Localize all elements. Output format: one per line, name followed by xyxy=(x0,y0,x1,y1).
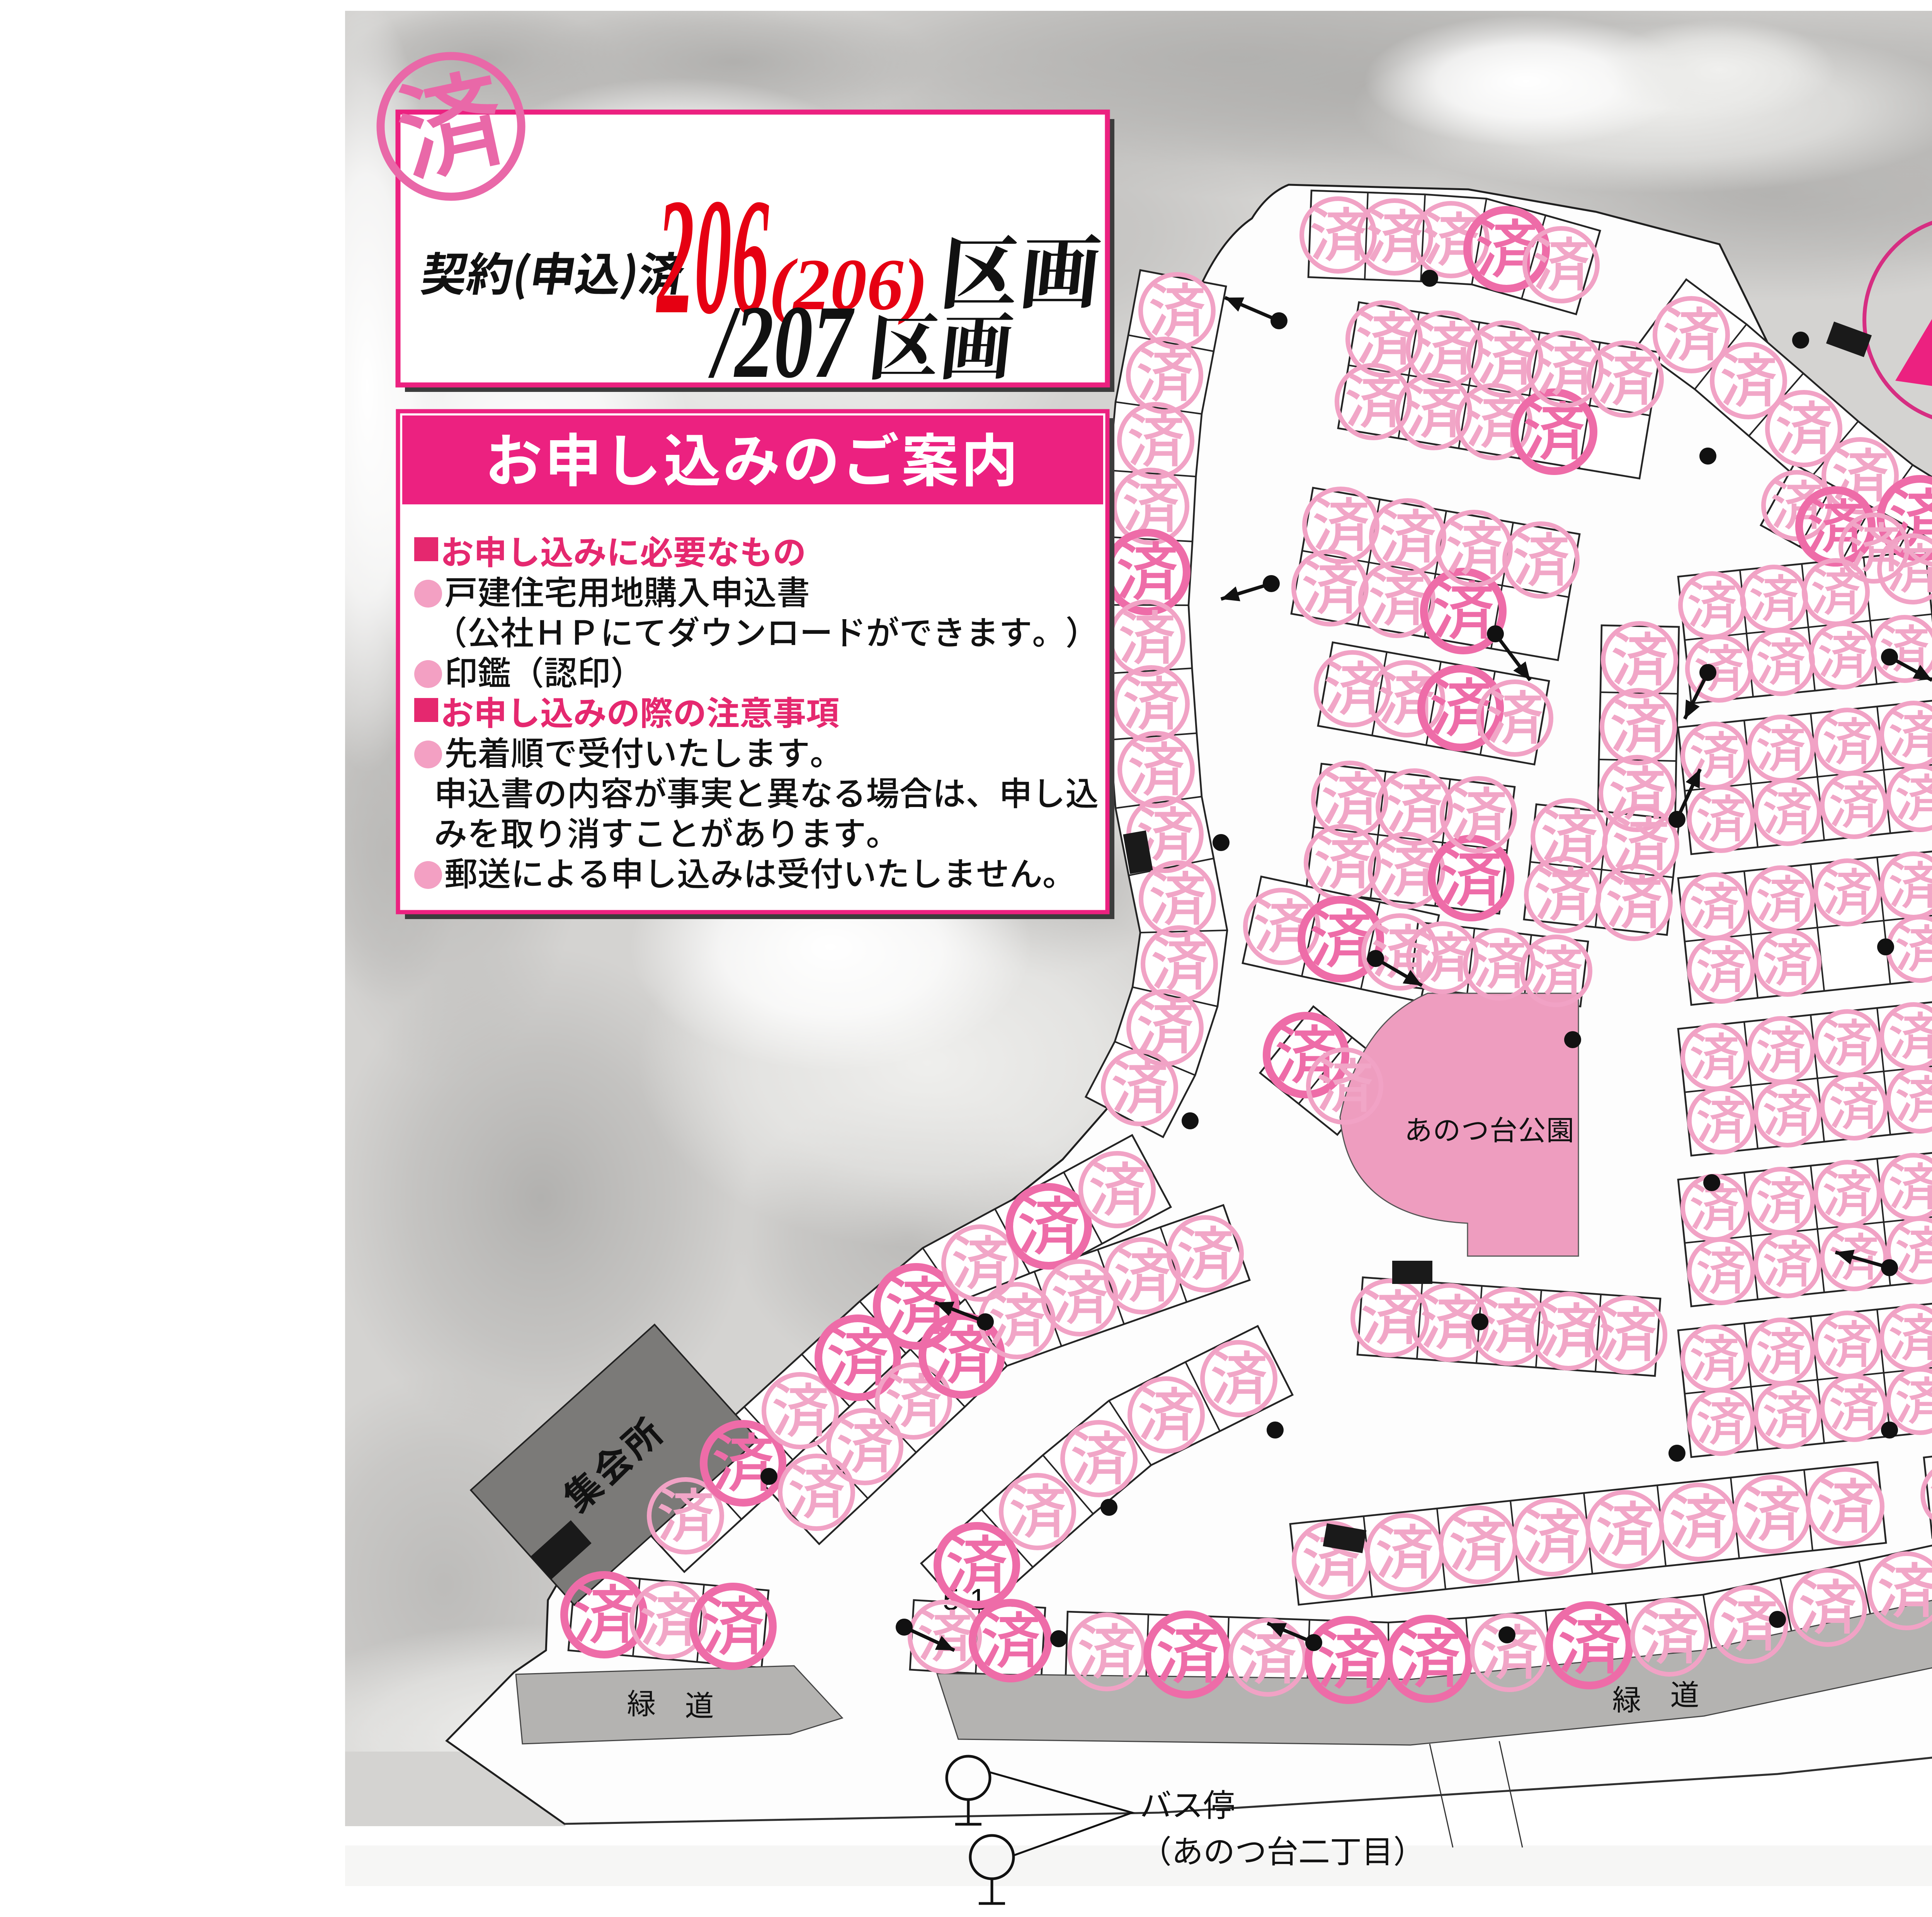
svg-text:/207: /207 xyxy=(708,284,855,400)
